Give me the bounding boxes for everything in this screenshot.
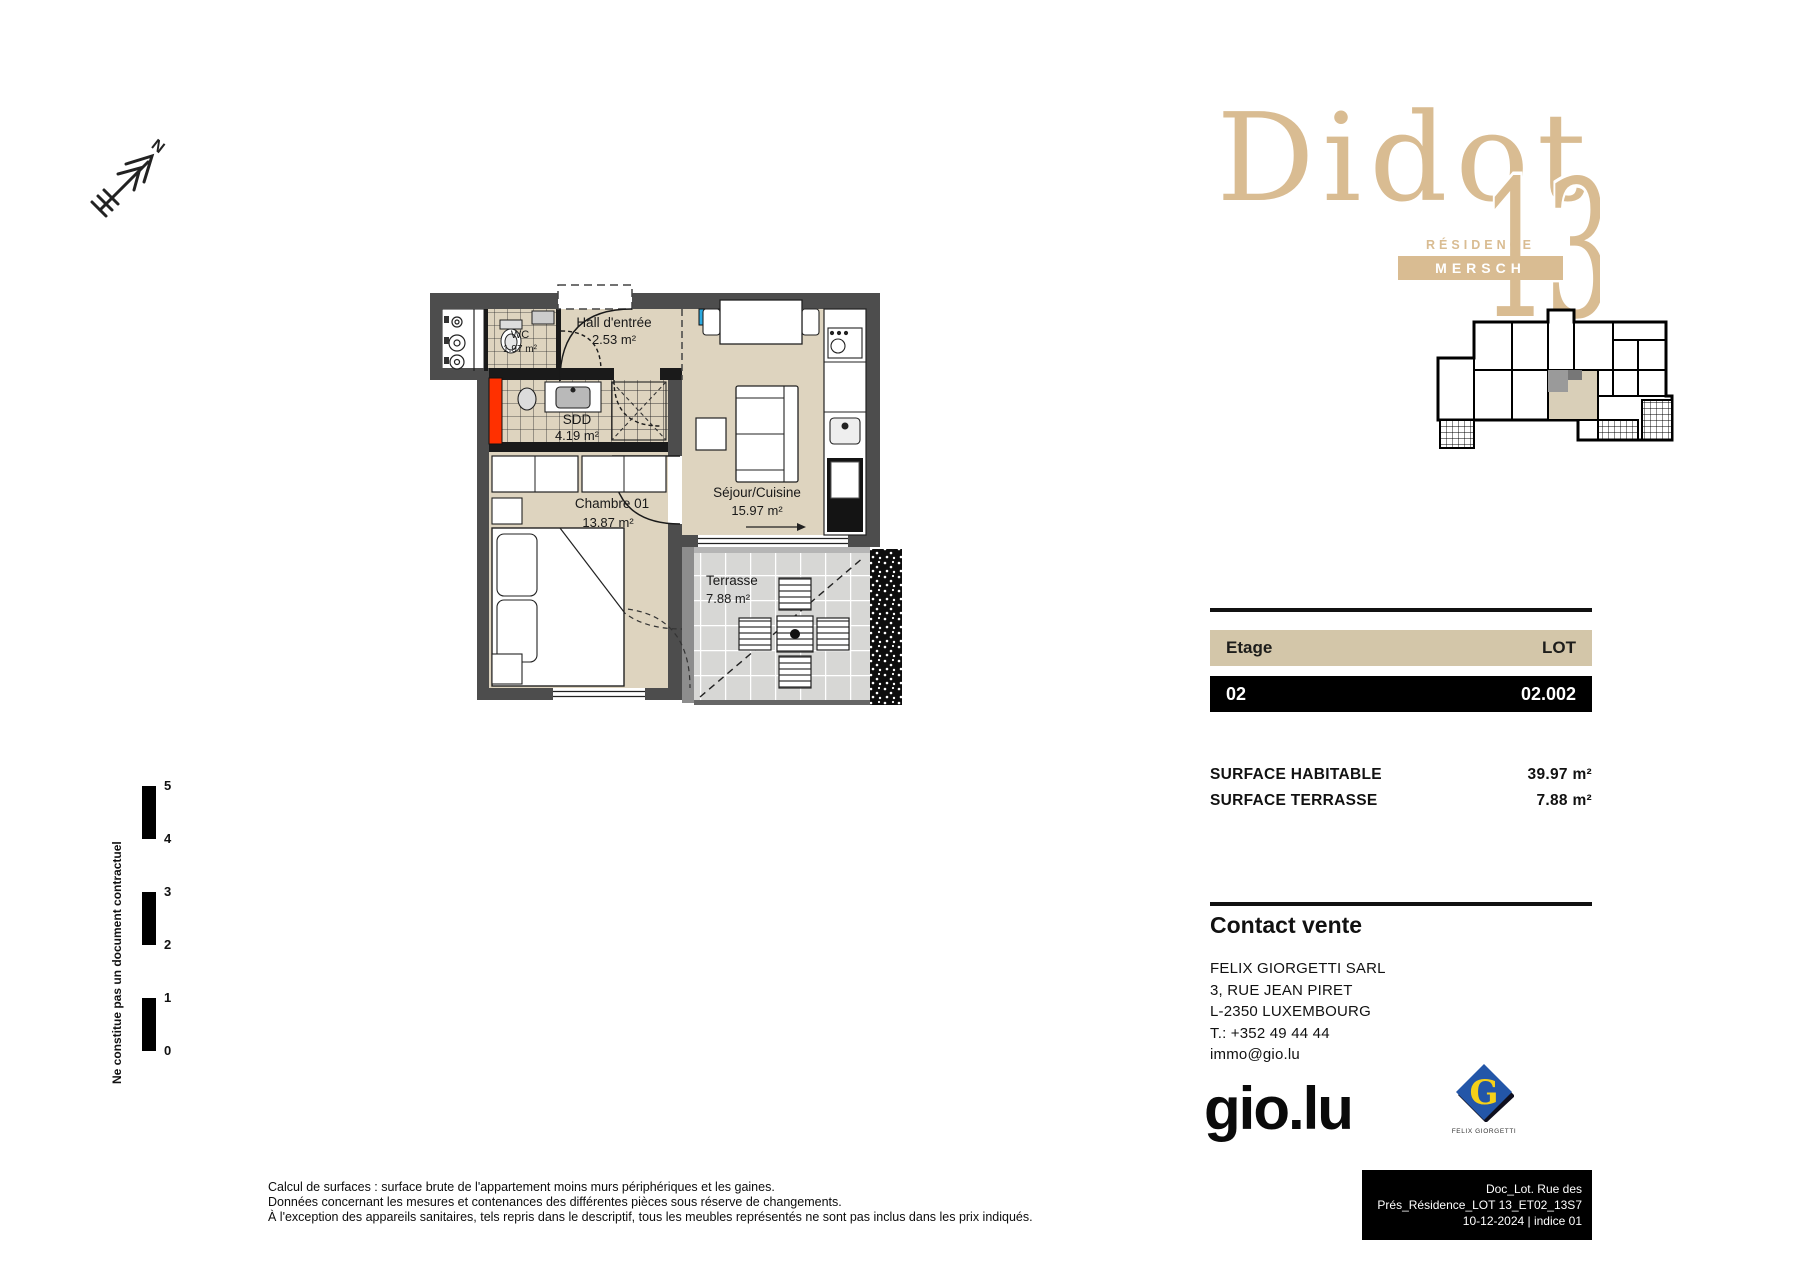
duct-shaft: [489, 378, 502, 444]
contact-phone: T.: +352 49 44 44: [1210, 1023, 1386, 1045]
didot-logo: Didot 13: [1200, 66, 1600, 336]
room-name: Chambre 01: [575, 496, 649, 511]
north-label: N: [148, 136, 168, 157]
kitchen: [824, 309, 866, 535]
etage-label: Etage: [1226, 638, 1272, 658]
contact-company: FELIX GIORGETTI SARL: [1210, 958, 1386, 980]
dining-table: [720, 300, 802, 344]
city-badge: MERSCH: [1398, 256, 1563, 280]
document-reference-box: Doc_Lot. Rue des Prés_Résidence_LOT 13_E…: [1362, 1170, 1592, 1240]
giorgetti-initial: G: [1469, 1073, 1498, 1113]
scale-bar-segment: [142, 892, 156, 945]
surface-label: SURFACE HABITABLE: [1210, 766, 1382, 784]
disclaimer: Calcul de surfaces : surface brute de l'…: [268, 1180, 1033, 1224]
unit-table-row: 02 02.002: [1210, 676, 1592, 712]
scale-tick: 4: [164, 831, 171, 846]
room-area: 1.97 m²: [503, 344, 538, 355]
scale-tick: 3: [164, 884, 171, 899]
doc-ref-line2: 10-12-2024 | indice 01: [1372, 1213, 1582, 1229]
gio-logo: gio.lu: [1204, 1074, 1352, 1143]
unit-table-header: Etage LOT: [1210, 630, 1592, 666]
scale-bar-segment: [142, 786, 156, 839]
giorgetti-logo: G FELIX GIORGETTI: [1446, 1062, 1522, 1135]
plan-sheet: N: [0, 0, 1800, 1273]
surface-summary: SURFACE HABITABLE 39.97 m² SURFACE TERRA…: [1210, 766, 1592, 818]
room-name: Hall d'entrée: [576, 315, 651, 330]
contact-address-line1: 3, RUE JEAN PIRET: [1210, 980, 1386, 1002]
room-area: 13.87 m²: [582, 515, 634, 530]
giorgetti-diamond-icon: G: [1454, 1062, 1514, 1122]
disclaimer-line: Calcul de surfaces : surface brute de l'…: [268, 1180, 1033, 1195]
nightstand: [492, 498, 522, 524]
coffee-table: [696, 418, 726, 450]
scale-tick: 0: [164, 1043, 171, 1058]
contractual-side-note: Ne constitue pas un document contractuel: [110, 841, 124, 1084]
disclaimer-line: Données concernant les mesures et conten…: [268, 1195, 1033, 1210]
scale-tick: 5: [164, 778, 171, 793]
floor-plan: WC 1.97 m² Hall d'entrée 2.53 m² SDD 4.1…: [420, 280, 920, 720]
room-name: SDD: [563, 412, 592, 427]
room-name: WC: [511, 329, 529, 341]
gravel-strip: [870, 549, 902, 705]
room-name: Séjour/Cuisine: [713, 485, 801, 500]
sink: [830, 418, 860, 444]
lot-label: LOT: [1542, 638, 1576, 658]
contact-title: Contact vente: [1210, 912, 1362, 939]
surface-value: 39.97 m²: [1528, 766, 1592, 784]
lot-value: 02.002: [1521, 684, 1576, 705]
contact-block: FELIX GIORGETTI SARL 3, RUE JEAN PIRET L…: [1210, 958, 1386, 1066]
divider: [1210, 902, 1592, 906]
giorgetti-caption: FELIX GIORGETTI: [1446, 1128, 1522, 1135]
contact-address-line2: L-2350 LUXEMBOURG: [1210, 1001, 1386, 1023]
residence-label: RÉSIDENCE: [1398, 238, 1563, 252]
scale-tick: 1: [164, 990, 171, 1005]
room-area: 7.88 m²: [706, 591, 751, 606]
scale-tick: 2: [164, 937, 171, 952]
etage-value: 02: [1226, 684, 1246, 705]
surface-value: 7.88 m²: [1536, 792, 1592, 810]
contact-email: immo@gio.lu: [1210, 1044, 1386, 1066]
surface-row: SURFACE TERRASSE 7.88 m²: [1210, 792, 1592, 810]
room-name: Terrasse: [706, 573, 758, 588]
divider: [1210, 608, 1592, 612]
north-arrow-icon: N: [88, 118, 180, 226]
key-plan: [1428, 300, 1680, 452]
disclaimer-line: À l'exception des appareils sanitaires, …: [268, 1210, 1033, 1225]
surface-row: SURFACE HABITABLE 39.97 m²: [1210, 766, 1592, 784]
room-area: 2.53 m²: [592, 332, 637, 347]
doc-ref-line1: Doc_Lot. Rue des Prés_Résidence_LOT 13_E…: [1372, 1181, 1582, 1213]
room-area: 15.97 m²: [731, 503, 783, 518]
surface-label: SURFACE TERRASSE: [1210, 792, 1378, 810]
room-area: 4.19 m²: [555, 428, 600, 443]
scale-bar-segment: [142, 998, 156, 1051]
